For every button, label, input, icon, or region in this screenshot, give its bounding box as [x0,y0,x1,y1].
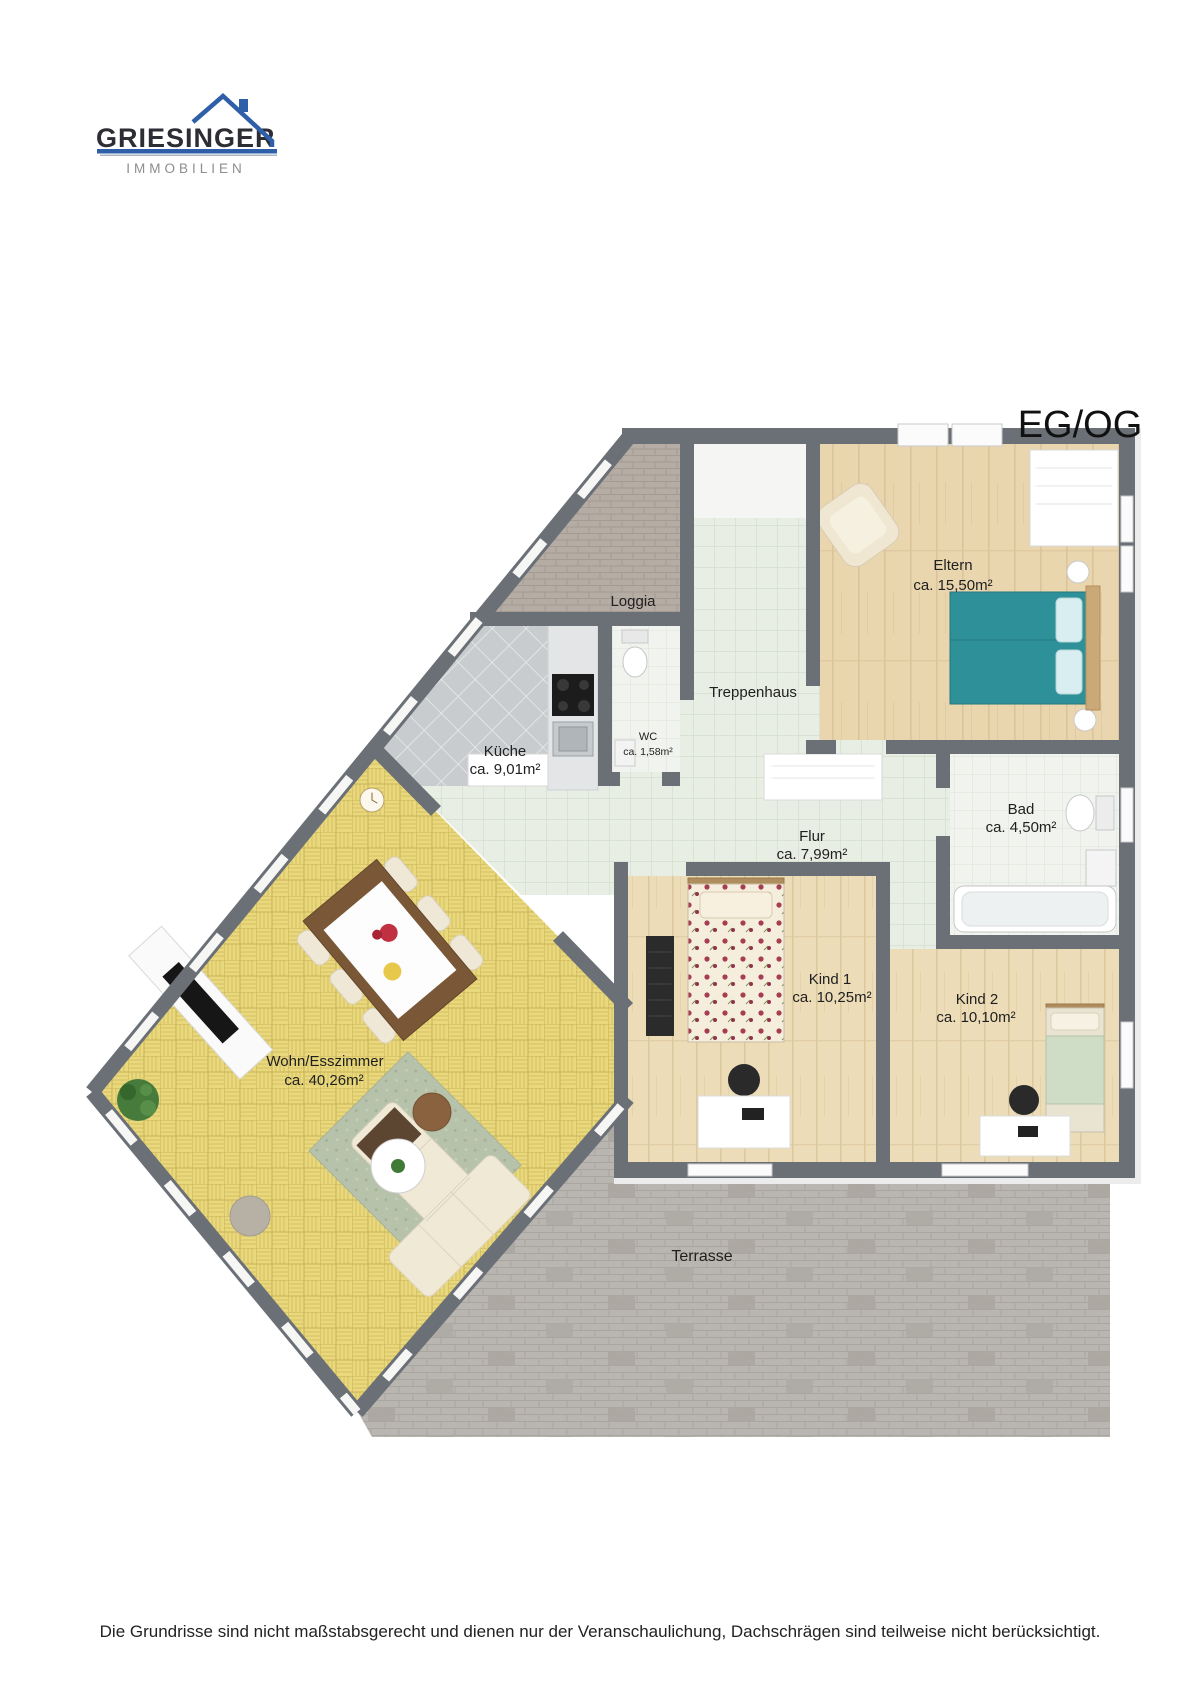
room-label-eltern: Eltern [933,557,972,574]
room-label-loggia: Loggia [610,593,656,610]
window [898,424,948,446]
window [952,424,1002,446]
logo: GRIESINGER IMMOBILIEN [96,96,277,176]
toilet-tank [1096,796,1114,830]
logo-subtitle: IMMOBILIEN [126,161,246,176]
disclaimer-text: Die Grundrisse sind nicht maßstabsgerech… [100,1622,1101,1641]
wardrobe-dark [646,936,674,1036]
nightstand [1074,709,1096,731]
room-label-bad: Bad [1008,801,1035,818]
plant [117,1079,159,1121]
room-label-wc: WC [639,731,657,743]
sink-unit [553,722,593,756]
room-area-kind1: ca. 10,25m² [792,989,871,1006]
double-bed [950,586,1100,710]
room-area-bad: ca. 4,50m² [986,819,1057,836]
room-area-wohnzimmer: ca. 40,26m² [284,1072,363,1089]
window [1121,1022,1133,1088]
window [1121,546,1133,592]
room-area-eltern: ca. 15,50m² [913,577,992,594]
bathtub [954,886,1116,932]
floor-loggia [486,436,694,612]
logo-name: GRIESINGER [96,123,276,153]
window [1121,788,1133,842]
desk-chair [1009,1085,1039,1115]
room-area-flur: ca. 7,99m² [777,846,848,863]
window [688,1164,772,1176]
wardrobe [1030,450,1118,546]
single-bed [1046,1004,1104,1132]
room-label-kind2: Kind 2 [956,991,999,1008]
toilet [623,647,647,677]
room-area-kind2: ca. 10,10m² [936,1009,1015,1026]
room-label-treppenhaus: Treppenhaus [709,684,797,701]
window [942,1164,1028,1176]
side-table [413,1093,451,1131]
cooktop [552,674,594,716]
room-area-kueche: ca. 9,01m² [470,761,541,778]
single-bed-floral [688,878,784,1042]
window [1121,496,1133,542]
room-label-terrasse: Terrasse [671,1248,732,1265]
nightstand [1067,561,1089,583]
plan-title: EG/OG [1018,404,1143,446]
room-label-kueche: Küche [484,743,527,760]
pouf [230,1196,270,1236]
toilet-tank [622,630,648,643]
desk-chair [728,1064,760,1096]
sink [1086,850,1116,886]
desk [698,1096,790,1148]
toilet [1066,795,1094,831]
room-area-wc: ca. 1,58m² [623,746,673,758]
floorplan-page: Loggia Treppenhaus Eltern ca. 15,50m² Kü… [0,0,1200,1697]
room-label-flur: Flur [799,828,825,845]
room-label-wohnzimmer: Wohn/Esszimmer [266,1053,383,1070]
flur-closet [764,754,882,800]
room-label-kind1: Kind 1 [809,971,852,988]
floorplan-canvas: Loggia Treppenhaus Eltern ca. 15,50m² Kü… [0,0,1200,1697]
